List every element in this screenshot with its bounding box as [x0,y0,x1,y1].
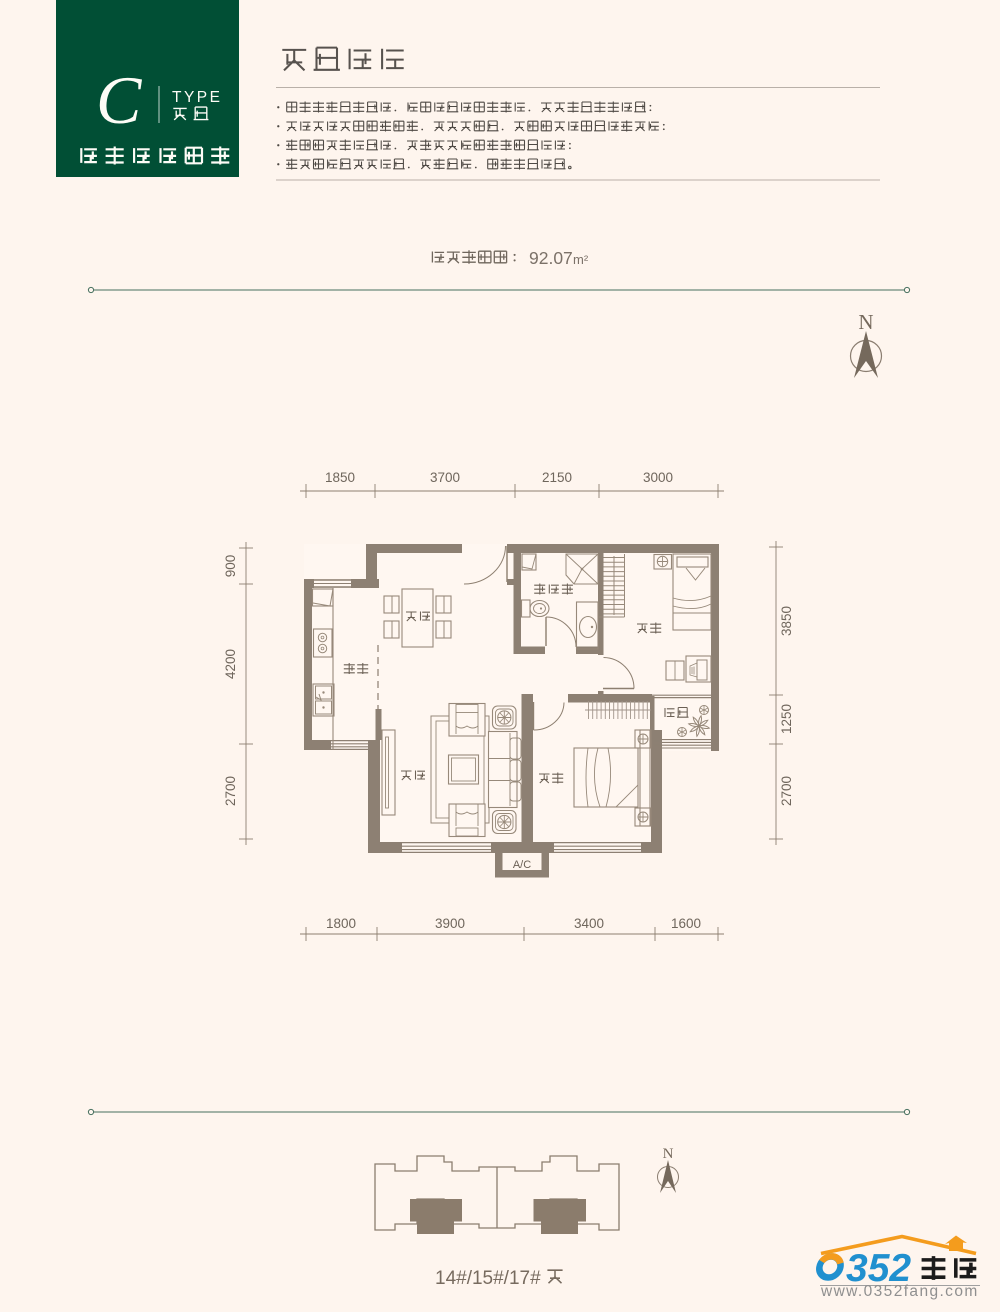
svg-text:14#/15#/17#: 14#/15#/17# [435,1268,541,1289]
svg-text:900: 900 [223,555,238,578]
svg-text:N: N [858,310,873,334]
svg-text:N: N [663,1146,674,1162]
svg-text:m²: m² [573,252,589,267]
svg-text:C: C [96,62,142,138]
svg-text:A/C: A/C [513,859,531,871]
svg-text:3850: 3850 [779,606,794,636]
svg-text:2150: 2150 [542,470,572,485]
svg-text:3900: 3900 [435,916,465,931]
svg-text:TYPE: TYPE [172,89,222,106]
svg-text:3400: 3400 [574,916,604,931]
svg-text:4200: 4200 [223,649,238,679]
svg-text:1250: 1250 [779,704,794,734]
svg-text:1600: 1600 [671,916,701,931]
svg-text:3700: 3700 [430,470,460,485]
svg-text:3000: 3000 [643,470,673,485]
svg-text:1800: 1800 [326,916,356,931]
svg-text:1850: 1850 [325,470,355,485]
svg-text:2700: 2700 [779,776,794,806]
svg-text:2700: 2700 [223,776,238,806]
svg-text:www.0352fang.com: www.0352fang.com [820,1283,979,1300]
svg-text:92.07: 92.07 [529,248,573,268]
